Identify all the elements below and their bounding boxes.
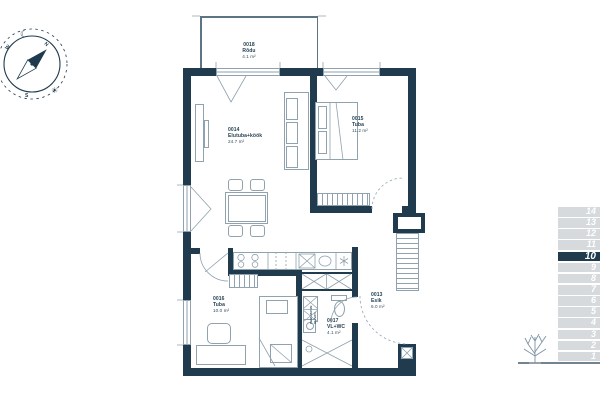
wall-segment xyxy=(183,68,216,76)
window-swing xyxy=(325,76,347,90)
floor-row-selected[interactable]: 10 xyxy=(558,252,600,262)
wardrobe xyxy=(317,193,370,206)
floor-selector: 14 13 12 11 10 9 8 7 6 5 4 3 2 1 xyxy=(558,207,600,363)
balcony-door-swing xyxy=(217,76,246,102)
window-swing xyxy=(191,187,211,231)
pillow xyxy=(266,300,288,314)
chair xyxy=(228,225,243,237)
wall-segment xyxy=(183,248,200,254)
kitchen-counter xyxy=(233,252,352,270)
moon-icon: ☾ xyxy=(20,29,28,39)
wall-segment xyxy=(402,206,416,213)
entry-tag xyxy=(398,217,421,229)
door-arc-bedroom2 xyxy=(200,253,228,281)
compass-pivot xyxy=(30,62,33,65)
sun-icon: ☀ xyxy=(51,86,58,95)
sofa-cushion xyxy=(286,98,298,120)
room-label-hallway: 0013Esik6.0 m² xyxy=(371,292,385,310)
room-label-balcony: 0018Rõdu4.1 m² xyxy=(231,42,267,60)
room-label-bedroom2: 0016Tuba10.0 m² xyxy=(213,296,229,314)
floor-row[interactable]: 5 xyxy=(558,307,600,317)
wardrobe xyxy=(229,274,258,288)
desk-chair xyxy=(207,323,231,344)
desk xyxy=(196,345,246,365)
room-label-bathroom: 0017VL+WC4.1 m² xyxy=(327,318,345,336)
shower xyxy=(302,340,352,366)
floor-row[interactable]: 4 xyxy=(558,318,600,328)
compass-label-n: N xyxy=(43,41,50,48)
window xyxy=(216,68,280,76)
pillow xyxy=(318,106,327,129)
washer-dryer-label: PESUMASIN KUIVATI xyxy=(310,306,317,324)
floor-row[interactable]: 3 xyxy=(558,330,600,340)
balcony-wall xyxy=(200,16,202,68)
room-label-living: 0014Elutuba+köök24.7 m² xyxy=(228,127,262,145)
compass-label-w: W xyxy=(4,44,12,52)
floor-row[interactable]: 8 xyxy=(558,274,600,284)
wall-segment xyxy=(310,206,372,213)
floor-row[interactable]: 1 xyxy=(558,352,600,362)
chair xyxy=(250,225,265,237)
vent-shaft xyxy=(300,272,354,291)
chair xyxy=(228,179,243,191)
room-label-bedroom: 0015Tuba11.2 m² xyxy=(352,116,368,134)
chair xyxy=(250,179,265,191)
toilet-bowl xyxy=(334,301,345,317)
door-arc-bedroom xyxy=(372,178,403,209)
floorplan-page: N W S ☾ ☀ xyxy=(0,0,600,400)
compass-icon: N W S ☾ ☀ xyxy=(0,20,72,106)
floor-row[interactable]: 13 xyxy=(558,218,600,228)
wall-segment xyxy=(408,76,416,215)
wall-segment xyxy=(380,68,416,76)
balcony-wall xyxy=(200,16,318,18)
wall-segment xyxy=(280,68,323,76)
floor-row[interactable]: 9 xyxy=(558,263,600,273)
window xyxy=(323,68,380,76)
floor-row[interactable]: 14 xyxy=(558,207,600,217)
window xyxy=(183,300,191,345)
service-shaft xyxy=(396,233,419,291)
sofa-cushion xyxy=(286,146,298,168)
floor-row[interactable]: 12 xyxy=(558,229,600,239)
balcony-wall xyxy=(317,16,319,68)
dining-table-top xyxy=(228,195,266,222)
window xyxy=(183,185,191,232)
blanket xyxy=(270,344,292,363)
sofa-cushion xyxy=(286,122,298,144)
wall-segment xyxy=(183,232,191,300)
floor-row[interactable]: 6 xyxy=(558,296,600,306)
tv xyxy=(204,120,209,148)
floor-row[interactable]: 7 xyxy=(558,285,600,295)
sideboard xyxy=(195,104,204,162)
wall-segment xyxy=(183,76,191,185)
pillow xyxy=(318,131,327,154)
wall-segment xyxy=(352,323,358,368)
floor-row[interactable]: 2 xyxy=(558,341,600,351)
electrical-box xyxy=(401,347,413,359)
floor-row[interactable]: 11 xyxy=(558,240,600,250)
wall-segment xyxy=(183,368,416,376)
tree-icon xyxy=(524,334,546,363)
compass-label-s: S xyxy=(25,93,29,99)
